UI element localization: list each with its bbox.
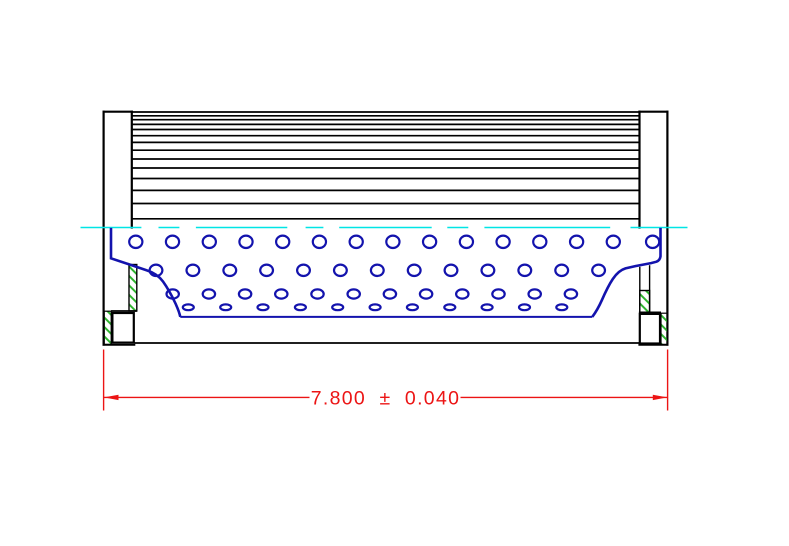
svg-text:7.800 ± 0.040: 7.800 ± 0.040 <box>311 388 460 410</box>
